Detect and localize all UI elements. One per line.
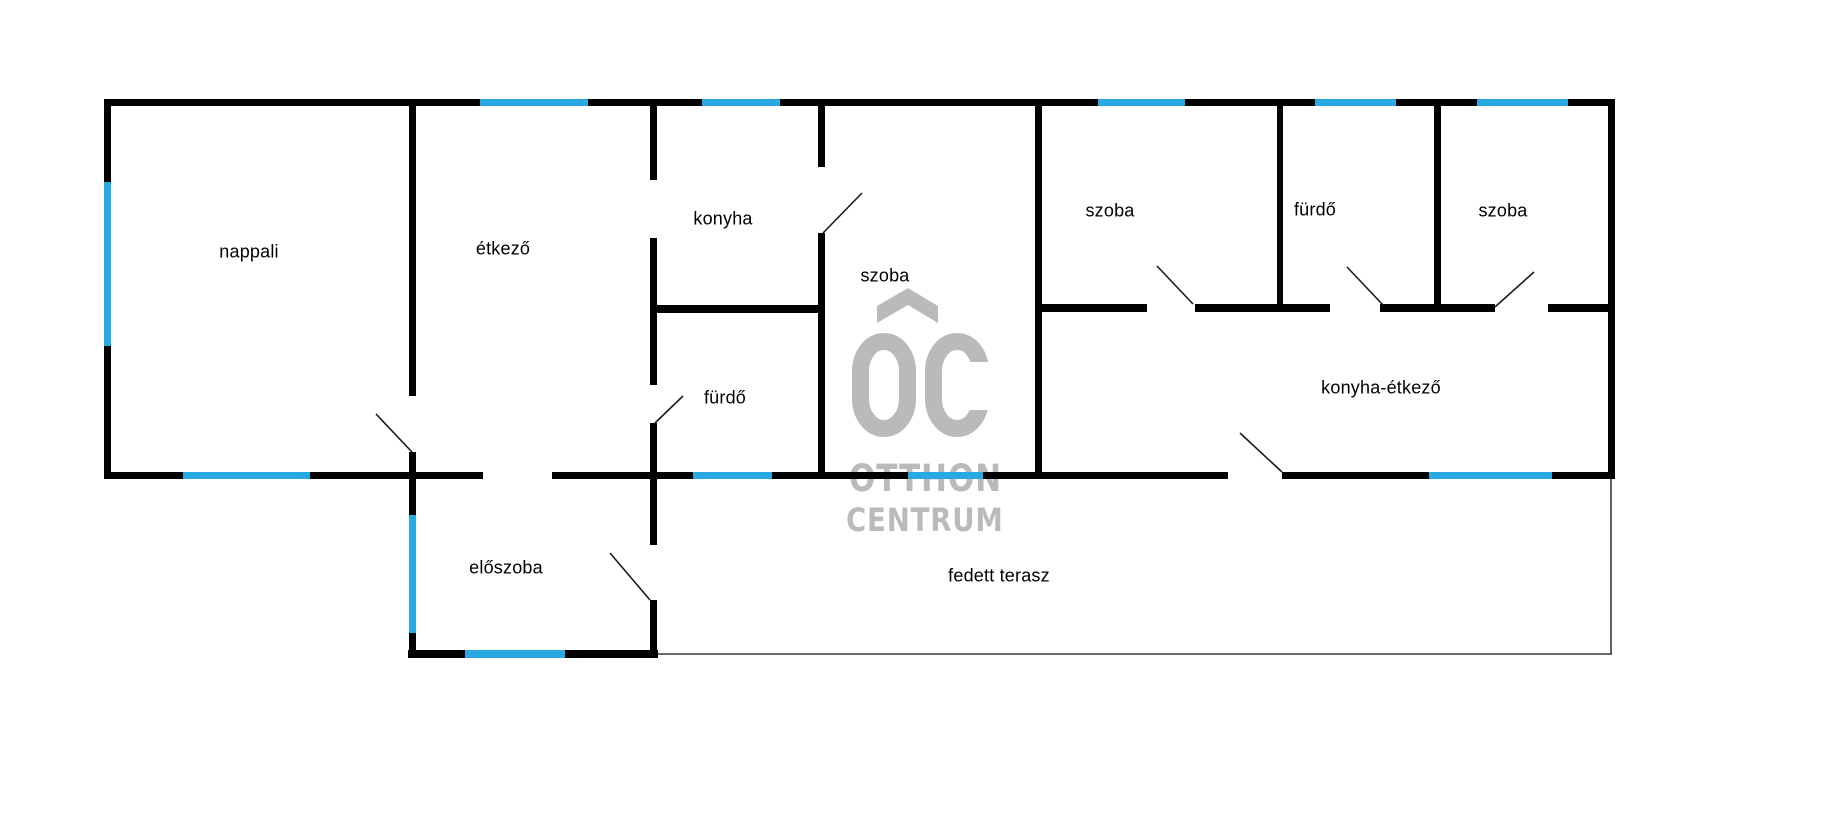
floor-plan-canvas: OTTHON CENTRUM nappaliétkezőkonyhaszobaf… (0, 0, 1825, 816)
room-label-szoba: szoba (1478, 201, 1527, 222)
room-label-szoba: szoba (860, 266, 909, 287)
labels-layer: nappaliétkezőkonyhaszobafürdőszobafürdős… (0, 0, 1825, 816)
room-label-konyha: konyha (693, 209, 752, 230)
room-label-nappali: nappali (219, 242, 278, 263)
room-label-el-szoba: előszoba (469, 558, 543, 579)
room-label-f-rd-: fürdő (704, 388, 746, 409)
room-label-fedett-terasz: fedett terasz (948, 566, 1050, 587)
room-label-f-rd-: fürdő (1294, 200, 1336, 221)
room-label--tkez-: étkező (476, 239, 530, 260)
room-label-konyha-tkez-: konyha-étkező (1321, 378, 1441, 399)
room-label-szoba: szoba (1085, 201, 1134, 222)
